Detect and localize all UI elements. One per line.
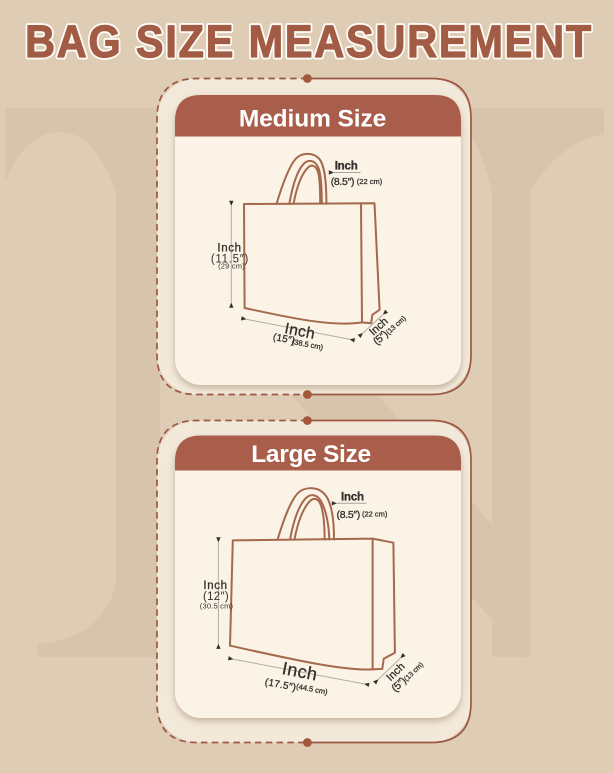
svg-text:BAG SIZE MEASUREMENT: BAG SIZE MEASUREMENT [25, 17, 593, 67]
svg-text:(8.5″): (8.5″) [331, 176, 355, 188]
svg-text:Medium Size: Medium Size [239, 106, 386, 133]
svg-text:Inch: Inch [335, 160, 358, 172]
svg-text:(29 cm): (29 cm) [218, 262, 245, 271]
svg-text:(22 cm): (22 cm) [357, 177, 383, 186]
svg-text:Inch: Inch [341, 491, 364, 503]
svg-text:Large Size: Large Size [251, 441, 371, 468]
svg-text:(8.5″): (8.5″) [337, 509, 361, 521]
svg-text:(30.5 cm): (30.5 cm) [200, 602, 234, 611]
svg-text:Inch: Inch [203, 580, 227, 592]
svg-text:(22 cm): (22 cm) [362, 510, 388, 519]
